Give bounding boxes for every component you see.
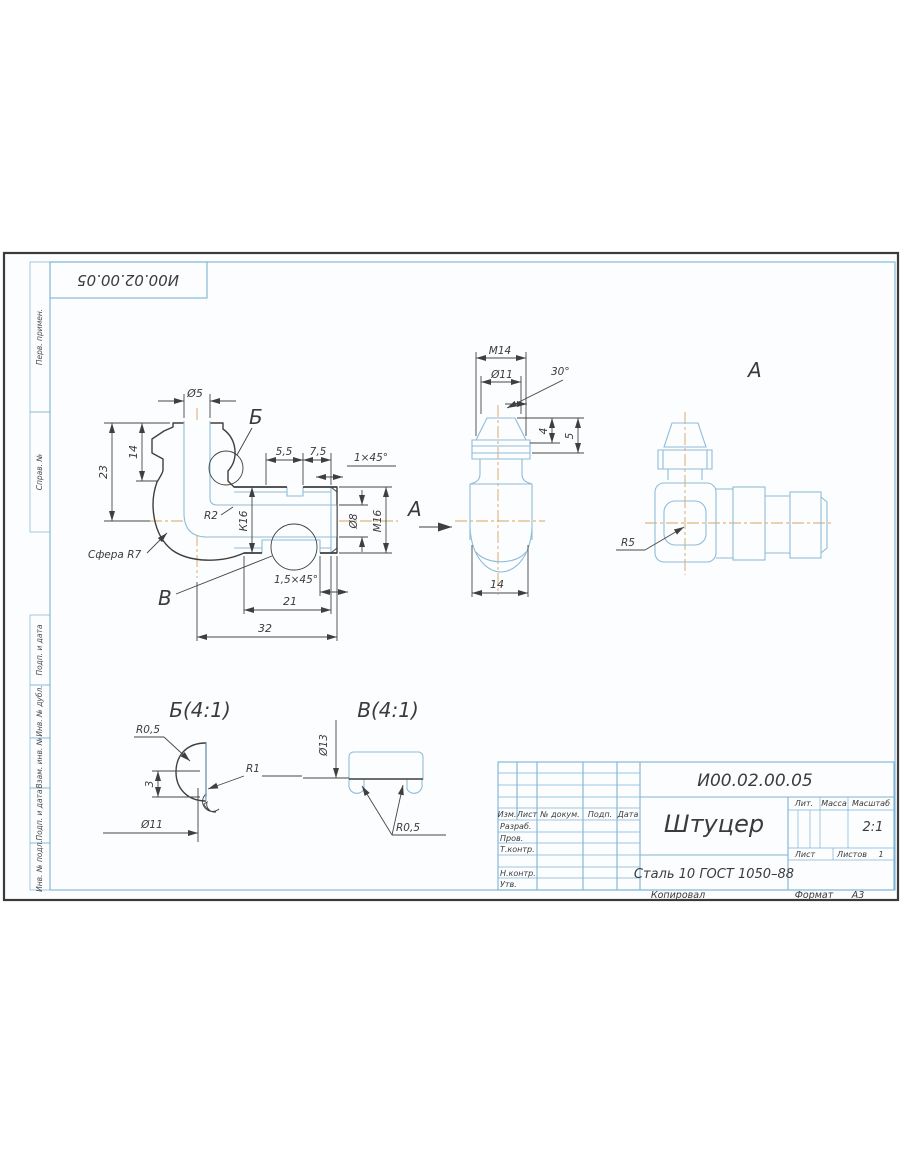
kopiroval-label: Копировал — [651, 890, 705, 901]
col-list: Лист — [516, 810, 538, 819]
sheet-border — [4, 253, 898, 900]
dim-7-5: 7,5 — [310, 446, 327, 458]
scale-value: 2:1 — [863, 820, 884, 835]
dim-5: 5 — [564, 432, 576, 439]
designation-inverted: И00.02.00.05 — [77, 271, 179, 289]
dim-chamfer-15x45: 1,5×45° — [274, 574, 318, 586]
dim-30deg: 30° — [551, 366, 570, 378]
margin-label-inv-dubl: Инв. № дубл. — [35, 685, 44, 736]
massa-header: Масса — [821, 799, 847, 808]
dim-d5: Ø5 — [186, 387, 203, 400]
material: Сталь 10 ГОСТ 1050–88 — [634, 867, 794, 882]
dim-4: 4 — [538, 428, 550, 435]
designation: И00.02.00.05 — [697, 771, 812, 791]
list-label: Лист — [794, 850, 816, 859]
dim-r5: R5 — [621, 537, 635, 549]
margin-label-inv-podl: Инв. № подл. — [35, 840, 44, 892]
masshtab-header: Масштаб — [852, 799, 890, 808]
dim-14: 14 — [127, 445, 140, 459]
dim-23: 23 — [97, 465, 110, 479]
dim-d11: Ø11 — [490, 369, 513, 381]
dim-m14: М14 — [489, 345, 511, 357]
margin-label-vzam-inv: Взам. инв. № — [35, 737, 44, 788]
margin-label-sprav-no: Справ. № — [35, 454, 44, 491]
dim-m16: М16 — [372, 509, 384, 532]
col-n-dokum: № докум. — [539, 810, 579, 819]
dim-21: 21 — [283, 595, 297, 608]
margin-label-podp-data-1: Подп. и дата — [35, 624, 44, 675]
drawing-page: Перв. примен. Справ. № Подп. и дата Инв.… — [0, 0, 910, 1155]
row-razrab: Разраб. — [500, 822, 531, 831]
dim-r1: R1 — [246, 763, 260, 775]
dim-k16: К16 — [238, 510, 250, 531]
margin-label-perv-primen: Перв. примен. — [35, 309, 44, 365]
gost-drawing-sheet: Перв. примен. Справ. № Подп. и дата Инв.… — [0, 0, 910, 1155]
dim-sphere-r7: Сфера R7 — [88, 549, 142, 561]
part-name: Штуцер — [664, 810, 764, 838]
listov-label: Листов — [836, 850, 867, 859]
margin-label-podp-data-2: Подп. и дата — [35, 789, 44, 840]
dim-r05-v: R0,5 — [396, 822, 420, 834]
detail-b-title: Б(4:1) — [169, 698, 231, 722]
view-a-title: А — [746, 358, 762, 382]
detail-v-ref-label: В — [158, 586, 172, 610]
detail-v-title: В(4:1) — [357, 698, 419, 722]
dim-r05-b: R0,5 — [136, 724, 160, 736]
dim-chamfer-1x45: 1×45° — [354, 452, 388, 464]
dim-d11-b: Ø11 — [140, 819, 163, 831]
dim-d8: Ø8 — [348, 513, 360, 529]
dim-5-5: 5,5 — [276, 446, 293, 458]
listov-value: 1 — [878, 850, 883, 859]
view-a-arrow-label: А — [406, 497, 422, 521]
dim-14-endview: 14 — [490, 578, 504, 591]
detail-b-ref-label: Б — [249, 405, 263, 429]
lit-header: Лит. — [794, 799, 813, 808]
row-prov: Пров. — [500, 834, 523, 843]
col-izm: Изм. — [498, 810, 517, 819]
format-label: Формат — [795, 890, 834, 901]
col-data: Дата — [617, 810, 639, 819]
col-podp: Подп. — [588, 810, 612, 819]
dim-d13: Ø13 — [318, 734, 330, 757]
format-value: А3 — [851, 890, 865, 901]
dim-32: 32 — [258, 622, 272, 635]
dim-r2: R2 — [204, 510, 218, 522]
row-n-kontr: Н.контр. — [500, 869, 536, 878]
dim-3: 3 — [144, 781, 156, 788]
row-t-kontr: Т.контр. — [500, 845, 535, 854]
row-utv: Утв. — [500, 880, 517, 889]
